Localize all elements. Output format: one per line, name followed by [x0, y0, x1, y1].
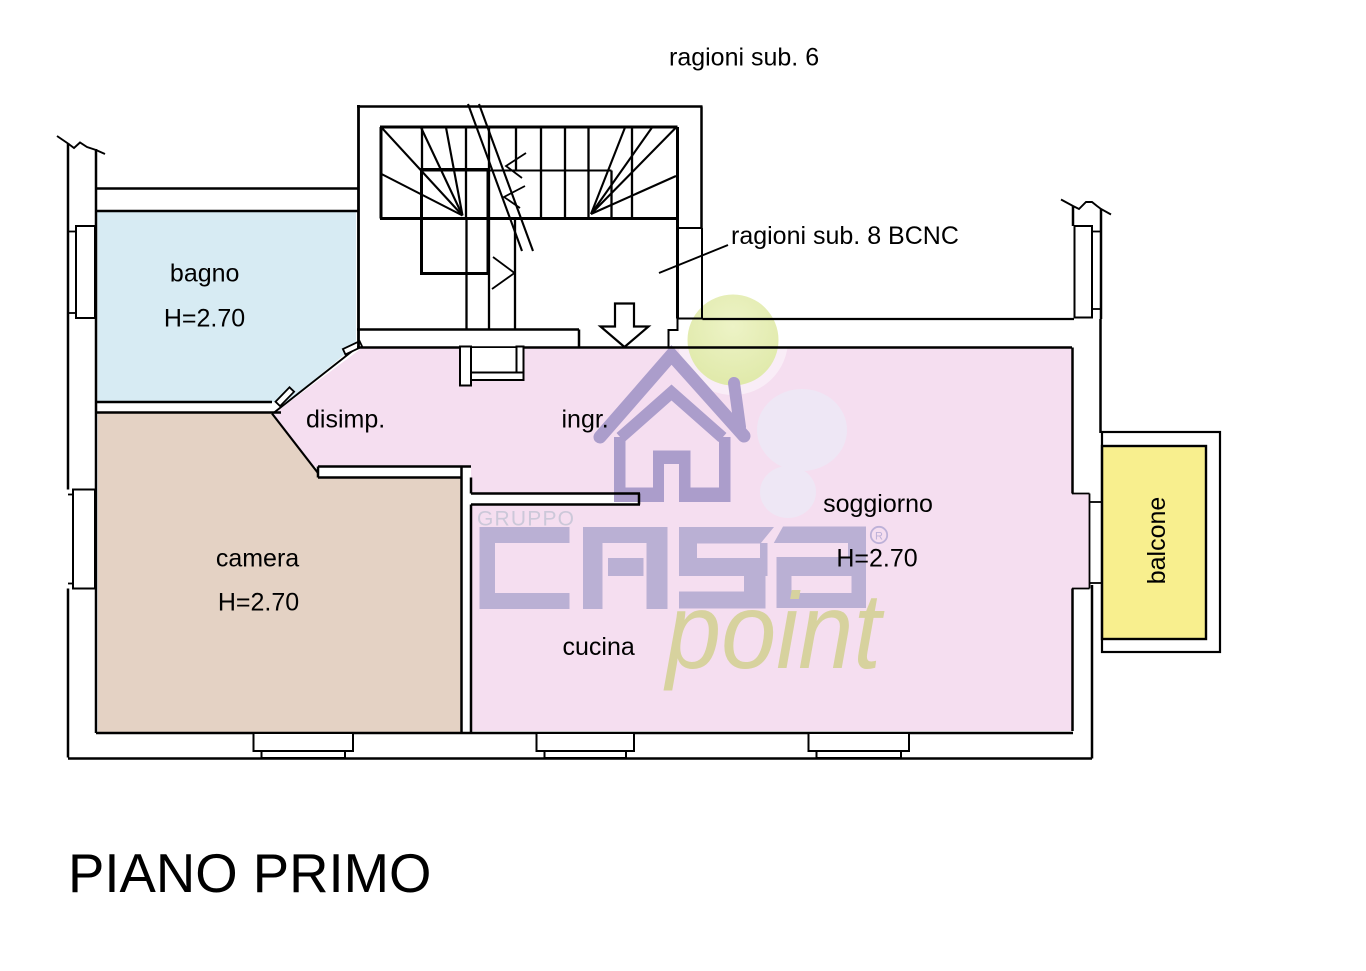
svg-text:disimp.: disimp.: [306, 406, 385, 434]
svg-text:bagno: bagno: [170, 260, 240, 288]
svg-text:camera: camera: [216, 545, 299, 573]
svg-text:cucina: cucina: [563, 633, 635, 661]
svg-text:R: R: [875, 531, 883, 543]
svg-text:H=2.70: H=2.70: [836, 545, 917, 573]
svg-text:soggiorno: soggiorno: [823, 490, 933, 518]
svg-text:H=2.70: H=2.70: [218, 589, 299, 617]
svg-text:ragioni sub. 6: ragioni sub. 6: [669, 44, 819, 72]
svg-text:ragioni sub. 8 BCNC: ragioni sub. 8 BCNC: [731, 222, 959, 250]
svg-text:PIANO PRIMO: PIANO PRIMO: [68, 843, 431, 904]
svg-text:balcone: balcone: [1143, 497, 1171, 585]
svg-text:point: point: [663, 570, 884, 691]
svg-text:H=2.70: H=2.70: [164, 305, 245, 333]
svg-text:ingr.: ingr.: [562, 406, 609, 434]
